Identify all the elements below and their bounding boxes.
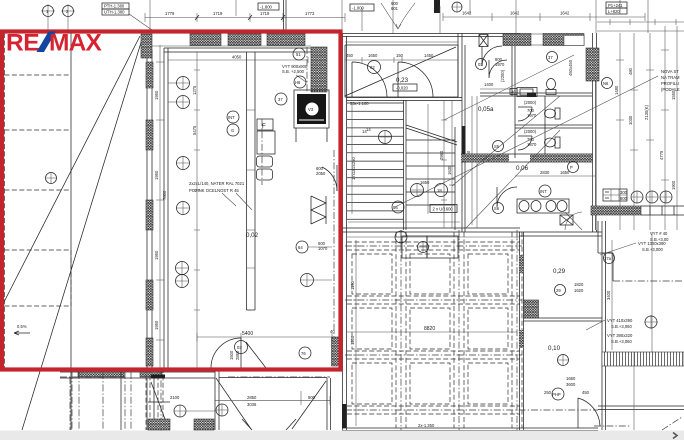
svg-text:2100: 2100 [170, 395, 180, 400]
svg-text:2130(K): 2130(K) [644, 104, 649, 120]
svg-text:1650: 1650 [420, 180, 430, 185]
svg-text:900: 900 [308, 395, 316, 400]
svg-text:(2200): (2200) [500, 69, 505, 82]
svg-text:14: 14 [362, 129, 367, 134]
svg-text:980: 980 [306, 129, 314, 134]
svg-text:1900: 1900 [671, 180, 676, 190]
svg-text:300: 300 [620, 190, 628, 195]
svg-text:450x450: 450x450 [568, 59, 573, 76]
svg-text:55x-1.100: 55x-1.100 [350, 101, 369, 106]
svg-text:(2000): (2000) [524, 100, 537, 105]
svg-text:VYT 390x320: VYT 390x320 [607, 333, 633, 338]
svg-text:1620: 1620 [574, 288, 584, 293]
svg-text:1870: 1870 [527, 142, 537, 147]
svg-text:1950: 1950 [154, 250, 159, 260]
svg-text:POZINK OCELNOST R 45: POZINK OCELNOST R 45 [189, 188, 239, 193]
svg-text:40: 40 [511, 90, 516, 95]
svg-text:P: P [570, 165, 573, 170]
svg-text:40: 40 [330, 329, 335, 334]
svg-text:480: 480 [628, 67, 633, 75]
svg-text:601: 601 [391, 6, 399, 11]
svg-text:S.B.+3,000: S.B.+3,000 [642, 247, 664, 252]
svg-text:S.B.+3,060: S.B.+3,060 [611, 324, 633, 329]
svg-text:0,05a: 0,05a [478, 106, 494, 113]
svg-text:1650: 1650 [368, 53, 378, 58]
svg-text:3600: 3600 [566, 382, 576, 387]
svg-text:29: 29 [556, 288, 561, 293]
svg-text:-0,020: -0,020 [396, 86, 409, 91]
svg-text:1275: 1275 [192, 85, 197, 95]
svg-text:64: 64 [298, 245, 303, 250]
svg-text:450: 450 [346, 53, 354, 58]
svg-text:1650: 1650 [560, 170, 570, 175]
svg-text:2x-1.350: 2x-1.350 [418, 423, 435, 428]
svg-text:3400: 3400 [606, 290, 611, 300]
svg-text:NA TRAM: NA TRAM [661, 75, 680, 80]
svg-text:2830: 2830 [540, 170, 550, 175]
svg-text:2 x U/1600: 2 x U/1600 [433, 207, 454, 212]
svg-text:2960: 2960 [439, 150, 444, 160]
svg-text:1070: 1070 [318, 246, 328, 251]
svg-text:1950: 1950 [154, 170, 159, 180]
svg-text:5400: 5400 [242, 331, 253, 337]
svg-text:VYT # 40: VYT # 40 [650, 231, 668, 236]
svg-text:18: 18 [437, 188, 442, 193]
svg-text:0,10: 0,10 [548, 345, 561, 352]
svg-text:800: 800 [620, 196, 628, 201]
svg-text:1950: 1950 [154, 90, 159, 100]
svg-text:S.B. +2,500: S.B. +2,500 [282, 69, 305, 74]
svg-text:L+820: L+820 [608, 9, 620, 14]
svg-text:1642: 1642 [510, 11, 520, 16]
svg-text:1400: 1400 [484, 82, 494, 87]
svg-text:UTH-1.380: UTH-1.380 [104, 10, 125, 15]
svg-text:1970: 1970 [495, 62, 505, 67]
svg-text:VYT 410x390: VYT 410x390 [607, 318, 633, 323]
svg-text:3036: 3036 [247, 402, 257, 407]
svg-text:150: 150 [396, 53, 404, 58]
svg-text:1030: 1030 [628, 115, 633, 125]
svg-text:V3: V3 [308, 107, 314, 112]
svg-text:4775: 4775 [659, 150, 664, 160]
svg-text:0,29: 0,29 [553, 268, 566, 275]
svg-text:N6: N6 [603, 81, 609, 86]
svg-text:1779: 1779 [165, 11, 175, 16]
svg-text:1500: 1500 [229, 350, 234, 360]
svg-text:S.B.+3,060: S.B.+3,060 [611, 339, 633, 344]
svg-text:0,23: 0,23 [396, 77, 409, 84]
svg-text:-1.800: -1.800 [260, 5, 273, 10]
svg-text:2850: 2850 [235, 350, 240, 360]
svg-text:2050: 2050 [316, 171, 326, 176]
svg-text:P1+241: P1+241 [608, 3, 623, 8]
svg-text:1450: 1450 [424, 53, 434, 58]
svg-text:1719: 1719 [260, 11, 270, 16]
svg-text:F: F [262, 123, 266, 130]
svg-text:02: 02 [370, 65, 375, 70]
svg-text:0,02: 0,02 [246, 232, 259, 239]
svg-text:450: 450 [582, 390, 590, 395]
svg-text:-1.000: -1.000 [352, 6, 365, 11]
svg-text:1773: 1773 [305, 11, 315, 16]
svg-text:(2000): (2000) [524, 129, 537, 134]
svg-text:0,06: 0,06 [516, 165, 529, 172]
svg-text:NOVA ST: NOVA ST [661, 69, 679, 74]
svg-text:PROFILU: PROFILU [661, 81, 679, 86]
svg-text:5475: 5475 [192, 125, 197, 135]
svg-text:1200: 1200 [350, 335, 355, 345]
svg-text:RE: RE [6, 30, 39, 57]
svg-text:2850: 2850 [247, 395, 257, 400]
svg-text:1642: 1642 [462, 11, 472, 16]
svg-text:S6: S6 [494, 206, 500, 211]
svg-text:7800: 7800 [162, 190, 167, 200]
svg-text:14: 14 [366, 127, 371, 132]
svg-text:PHP: PHP [552, 392, 561, 397]
svg-text:1642: 1642 [560, 11, 570, 16]
svg-text:PTH-1.380: PTH-1.380 [104, 4, 125, 9]
svg-text:H6: H6 [295, 80, 301, 85]
svg-text:250: 250 [544, 390, 552, 395]
svg-text:51: 51 [296, 52, 301, 57]
svg-text:1480: 1480 [614, 85, 619, 95]
svg-text:4050: 4050 [232, 55, 242, 60]
svg-text:37: 37 [278, 97, 283, 102]
svg-text:1660: 1660 [566, 376, 576, 381]
svg-text:0,5%: 0,5% [17, 324, 27, 329]
svg-text:(PODHLE: (PODHLE [661, 87, 680, 92]
svg-text:MAX: MAX [49, 30, 103, 57]
svg-text:8820: 8820 [424, 326, 435, 332]
svg-text:1950: 1950 [154, 320, 159, 330]
svg-text:56: 56 [393, 205, 398, 210]
svg-text:G: G [231, 128, 234, 133]
svg-text:INT: INT [228, 115, 235, 120]
svg-text:1190: 1190 [350, 280, 355, 290]
svg-text:INT: INT [540, 189, 547, 194]
svg-text:2x2xL/140, NATER RAL 7021: 2x2xL/140, NATER RAL 7021 [189, 181, 245, 186]
svg-text:S5: S5 [494, 144, 500, 149]
svg-text:1970: 1970 [527, 113, 537, 118]
svg-text:03: 03 [237, 345, 242, 350]
svg-text:1630: 1630 [447, 165, 452, 175]
svg-text:37: 37 [548, 55, 553, 60]
svg-text:76: 76 [301, 351, 306, 356]
svg-text:1820: 1820 [574, 282, 584, 287]
svg-text:03: 03 [478, 62, 483, 67]
svg-text:1719: 1719 [213, 11, 223, 16]
